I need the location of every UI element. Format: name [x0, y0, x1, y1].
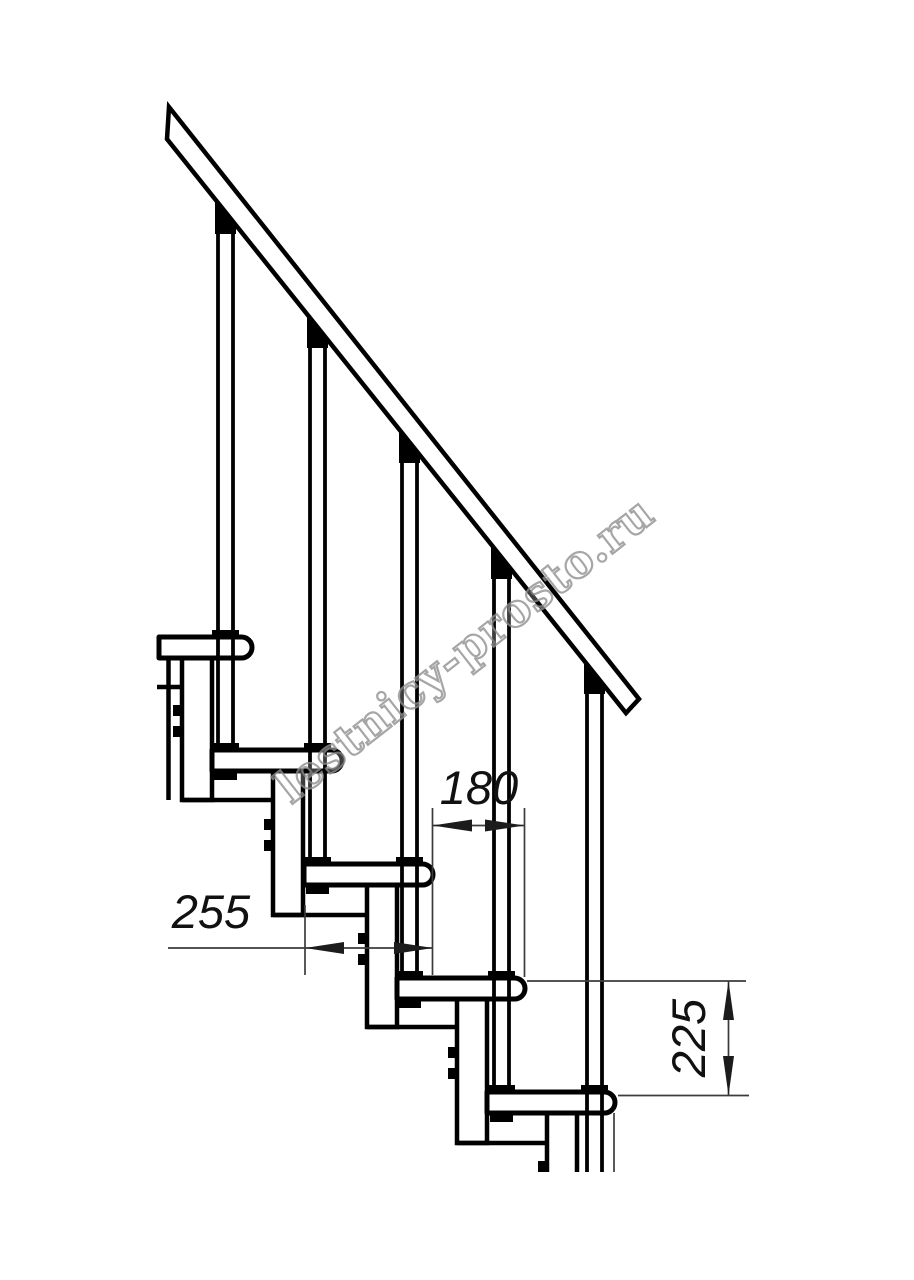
arrow-up: [723, 981, 734, 1020]
tread-4: [397, 978, 525, 999]
nut: [490, 1113, 513, 1122]
bolt: [173, 705, 182, 716]
collar: [488, 971, 515, 979]
collar: [396, 971, 423, 979]
tread-5: [487, 1092, 615, 1113]
bolt: [448, 1068, 457, 1079]
bolt: [538, 1161, 547, 1172]
dimension-label-255: 255: [171, 885, 251, 938]
collar: [581, 1085, 608, 1093]
bolt: [173, 726, 182, 737]
collar: [212, 743, 239, 751]
nut: [214, 771, 237, 780]
arrow-left: [433, 820, 473, 832]
collar: [396, 857, 423, 865]
bolt: [358, 954, 367, 965]
column-3: [367, 872, 397, 1027]
bolt: [358, 933, 367, 944]
baluster-1: [218, 230, 233, 750]
arrow-left: [305, 942, 344, 954]
bolt: [264, 840, 273, 851]
column-4: [457, 986, 487, 1143]
arrow-right: [394, 942, 433, 954]
staircase-drawing: 180 255 225 lestnicy-prosto.ru: [0, 0, 914, 1280]
column-1: [182, 645, 212, 800]
tread-3: [304, 864, 433, 885]
tread-1: [159, 637, 252, 658]
collar: [212, 630, 239, 638]
nut: [398, 999, 421, 1008]
dimension-label-180: 180: [440, 761, 518, 814]
collar: [304, 857, 331, 865]
nut: [306, 885, 329, 894]
bolt: [264, 819, 273, 830]
arrow-down: [723, 1056, 734, 1096]
arrow-right: [485, 820, 525, 832]
bolt: [448, 1047, 457, 1058]
collar: [488, 1085, 515, 1093]
dimension-label-225: 225: [662, 998, 715, 1078]
